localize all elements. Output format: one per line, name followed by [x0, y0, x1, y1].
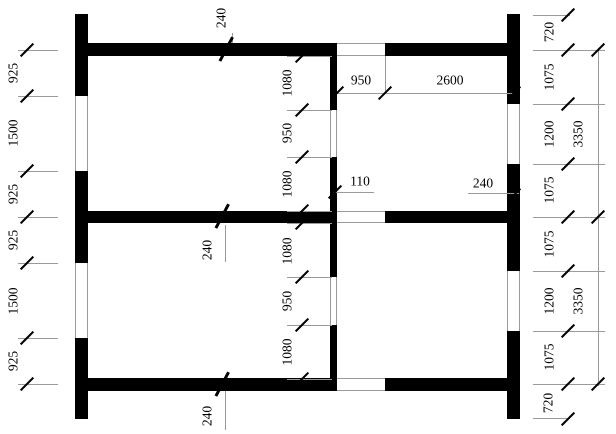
dim-label: 1080	[280, 238, 294, 265]
callout-leader-middle	[225, 225, 226, 262]
wall-thickness-label-bottom: 240	[200, 406, 214, 426]
dim-extension-line	[287, 157, 332, 158]
opening-top-wall	[337, 43, 385, 56]
dim-label: 1200	[542, 121, 556, 148]
dim-label: 1075	[542, 344, 556, 371]
dim-line-top	[337, 93, 514, 94]
window-opening-left-top	[75, 96, 88, 171]
window-opening-left-bottom	[75, 263, 88, 338]
dim-label: 950	[351, 73, 371, 87]
dim-label: 1500	[6, 120, 20, 147]
opening-middle-wall	[337, 211, 385, 223]
dim-label: 720	[541, 393, 555, 413]
window-opening-right-bottom	[507, 271, 520, 331]
dim-label: 1500	[6, 288, 20, 315]
dim-label: 3350	[571, 288, 585, 315]
dim-label: 950	[280, 291, 294, 311]
dim-label: 925	[6, 351, 20, 371]
window-opening-right-top	[507, 104, 520, 164]
dim-extension-line	[533, 418, 570, 419]
top-wall	[83, 43, 513, 56]
dim-extension-line	[287, 223, 332, 224]
callout-line-110	[333, 192, 374, 193]
dim-label: 925	[6, 184, 20, 204]
dim-label: 950	[280, 123, 294, 143]
dim-label: 1075	[542, 231, 556, 258]
opening-bottom-wall	[337, 378, 385, 391]
wall-thickness-label-top: 240	[214, 8, 228, 28]
dim-label: 1200	[542, 288, 556, 315]
dim-label: 720	[542, 22, 556, 42]
door-opening-partition-bottom	[330, 277, 337, 325]
dim-extension-line	[385, 56, 386, 93]
dim-label: 925	[6, 230, 20, 250]
dim-extension-line	[287, 211, 332, 212]
dim-label: 1080	[280, 339, 294, 366]
interior-partition-wall	[330, 56, 337, 379]
wall-thickness-label-right: 240	[473, 176, 493, 190]
wall-thickness-label-interior: 110	[350, 174, 370, 188]
floor-plan-drawing: 925 1500 925 925 1500 925 1080 950 1080 …	[0, 0, 616, 434]
dim-tick	[561, 412, 575, 426]
dim-extension-line	[287, 325, 332, 326]
dim-extension-line	[287, 56, 332, 57]
door-opening-partition-top	[330, 110, 337, 157]
wall-thickness-label-middle: 240	[200, 240, 214, 260]
dim-label: 1080	[280, 70, 294, 97]
dim-extension-line	[287, 110, 332, 111]
dim-label: 2600	[437, 73, 464, 87]
dim-label: 925	[6, 63, 20, 83]
dim-extension-line	[287, 277, 332, 278]
dim-label: 1080	[280, 171, 294, 198]
dim-extension-line	[287, 379, 332, 380]
callout-line-240-right	[468, 193, 519, 194]
dim-label: 3350	[571, 121, 585, 148]
dim-label: 1075	[542, 64, 556, 91]
dim-label: 1075	[542, 177, 556, 204]
callout-leader-bottom	[225, 391, 226, 430]
